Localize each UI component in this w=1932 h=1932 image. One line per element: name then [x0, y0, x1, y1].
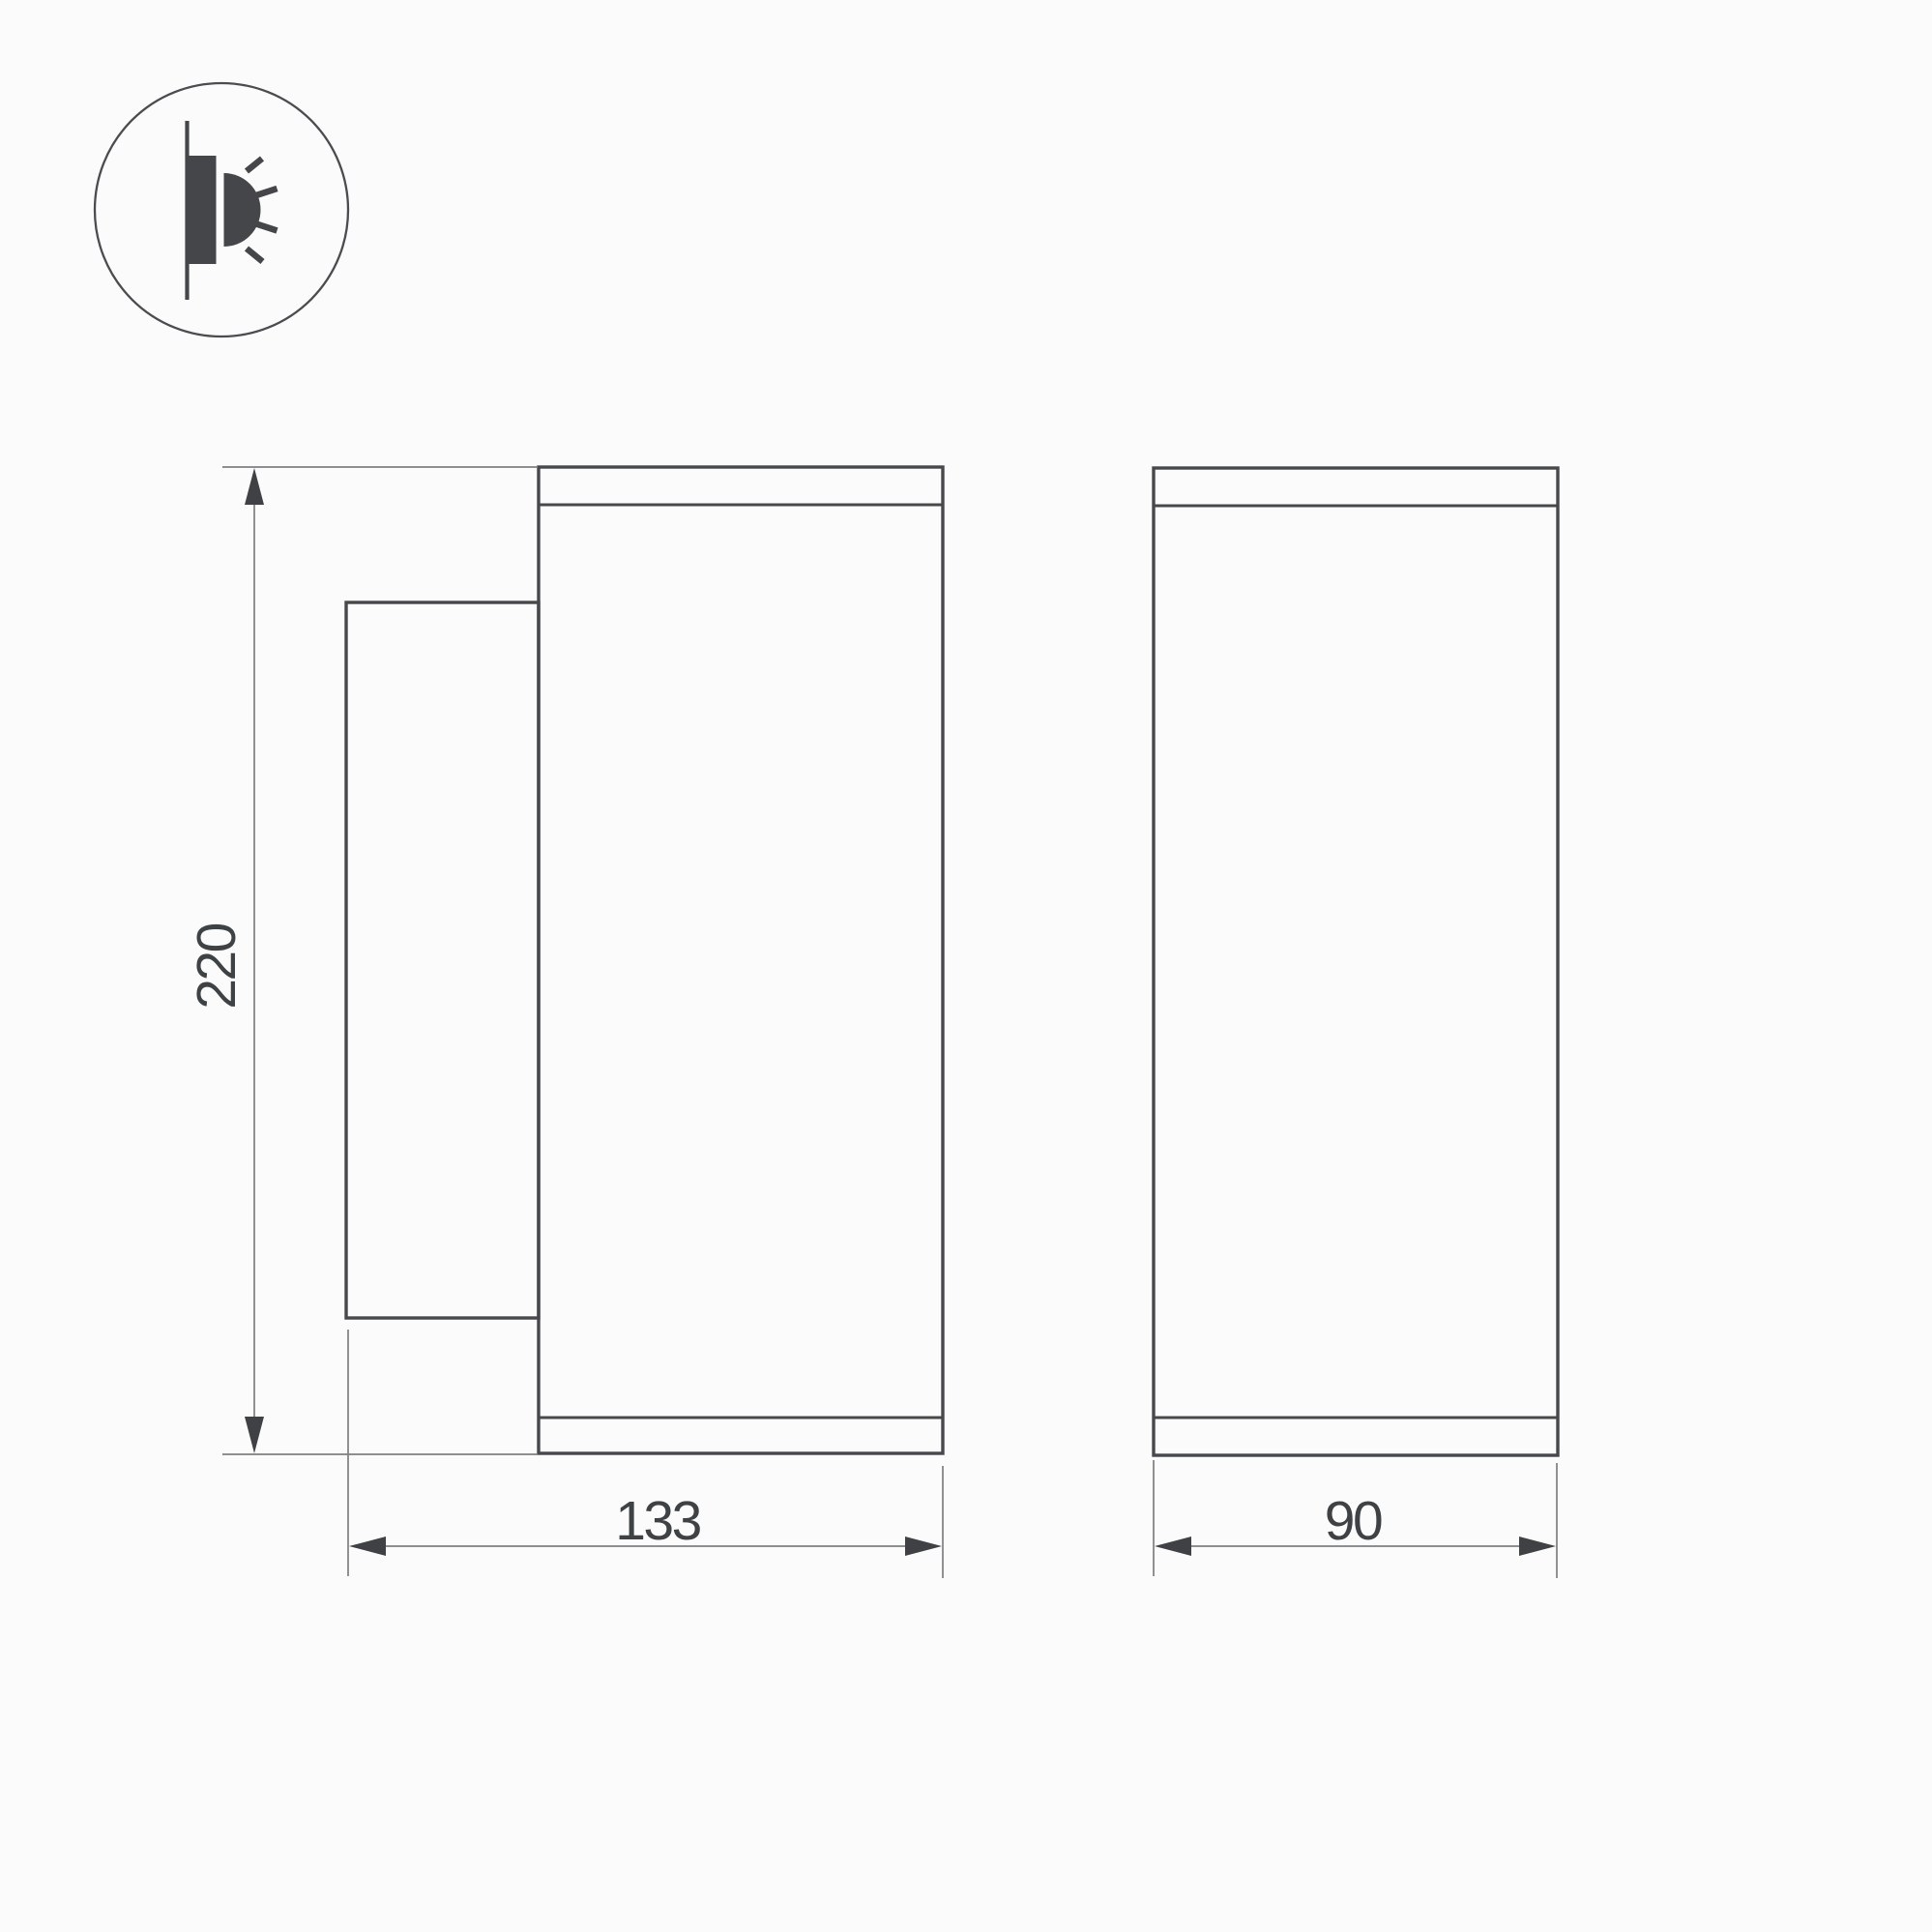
icon-ray-3 — [256, 224, 278, 231]
depth-dimension-label: 133 — [615, 1490, 700, 1552]
width-arrow-right — [1519, 1537, 1556, 1556]
front-view — [1154, 468, 1558, 1455]
width-dimension: 90 — [1154, 1460, 1557, 1578]
icon-circle — [95, 83, 348, 337]
height-arrow-up — [245, 468, 264, 505]
front-view-body — [1154, 468, 1558, 1455]
icon-ray-4 — [247, 249, 263, 262]
height-dimension: 220 — [186, 467, 538, 1454]
technical-drawing-canvas: 220 133 90 — [0, 0, 1932, 1932]
width-arrow-left — [1155, 1537, 1191, 1556]
side-view-wall-plate — [346, 602, 539, 1318]
mounting-type-icon — [95, 83, 348, 337]
width-dimension-label: 90 — [1325, 1490, 1382, 1552]
height-arrow-down — [245, 1417, 264, 1453]
side-view-body — [539, 467, 943, 1453]
height-dimension-label: 220 — [186, 923, 248, 1009]
side-view — [346, 467, 943, 1453]
depth-arrow-right — [905, 1537, 942, 1556]
icon-ray-1 — [247, 159, 262, 171]
icon-fixture-body — [189, 156, 217, 264]
icon-ray-2 — [256, 189, 278, 195]
depth-arrow-left — [349, 1537, 386, 1556]
luminaire-dimension-drawing: 220 133 90 — [0, 0, 1932, 1932]
icon-light-dome — [224, 173, 261, 247]
